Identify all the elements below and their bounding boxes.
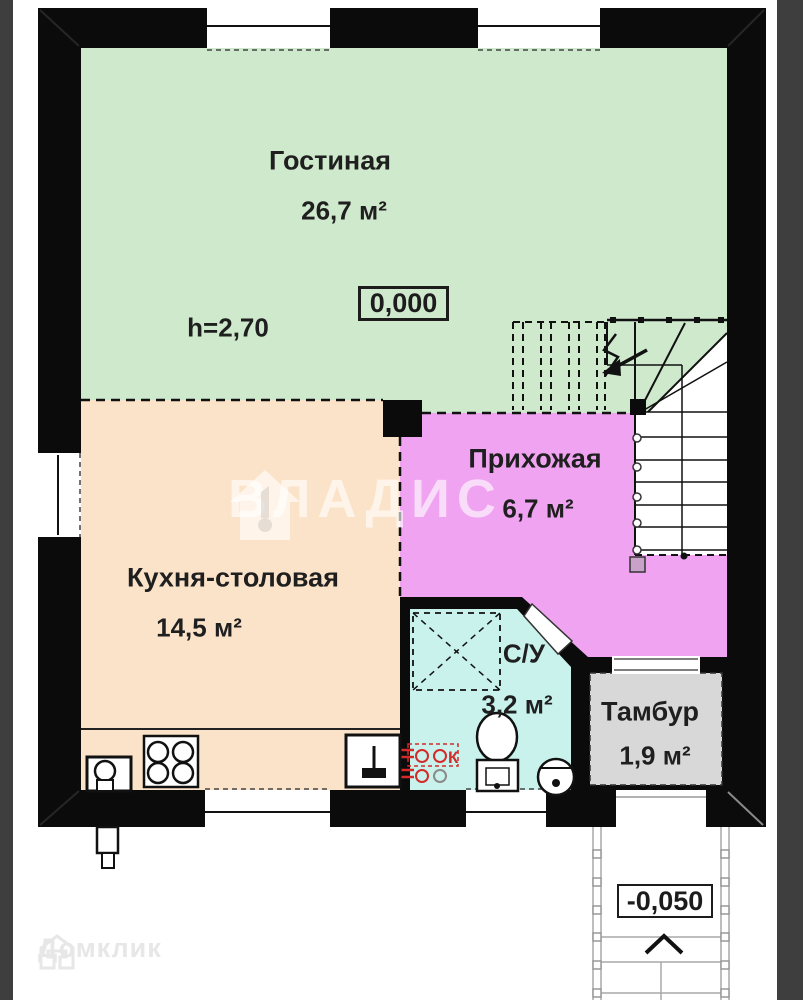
vestibule-label: Тамбур — [601, 697, 699, 728]
window-top-right — [478, 8, 600, 50]
stove — [144, 736, 198, 787]
bathroom-label: С/У — [503, 639, 545, 670]
vestibule-area-label: 1,9 м² — [619, 741, 690, 772]
vladis-house-icon — [228, 468, 302, 542]
ceiling-height-label: h=2,70 — [187, 313, 269, 344]
floor-drain — [538, 759, 574, 795]
kitchen-area-label: 14,5 м² — [156, 613, 242, 644]
window-bathroom-bottom — [466, 789, 546, 827]
kitchen-sink-small — [87, 757, 131, 791]
column — [383, 400, 422, 437]
elevation-marker-main: 0,000 — [358, 286, 449, 321]
entrance-door — [616, 790, 706, 827]
kitchen-label: Кухня-столовая — [127, 563, 339, 594]
elevation-entrance-value: -0,050 — [627, 886, 704, 917]
domclick-house-icon — [38, 933, 76, 971]
bathroom-area-label: 3,2 м² — [481, 690, 552, 721]
kitchen-sink — [346, 735, 400, 787]
window-left — [38, 453, 81, 537]
elevation-main-value: 0,000 — [370, 288, 438, 319]
living-room-label: Гостиная — [269, 146, 391, 177]
window-kitchen-bottom — [205, 789, 330, 827]
living-room-area-label: 26,7 м² — [301, 196, 387, 227]
vestibule-inner-door — [612, 656, 700, 674]
window-top-left — [207, 8, 330, 50]
drain-pipe — [97, 827, 118, 868]
floor-plan-page: К — [0, 0, 803, 1000]
domclick-watermark: Домклик — [38, 933, 162, 964]
entrance-arrow-icon — [646, 936, 682, 953]
vladis-watermark: ВЛАДИС — [228, 468, 503, 530]
toilet — [477, 713, 518, 791]
hallway-area-label: 6,7 м² — [502, 494, 573, 525]
riser-label: К — [448, 748, 459, 767]
elevation-marker-entrance: -0,050 — [617, 884, 713, 918]
kitchen-area — [81, 400, 400, 790]
